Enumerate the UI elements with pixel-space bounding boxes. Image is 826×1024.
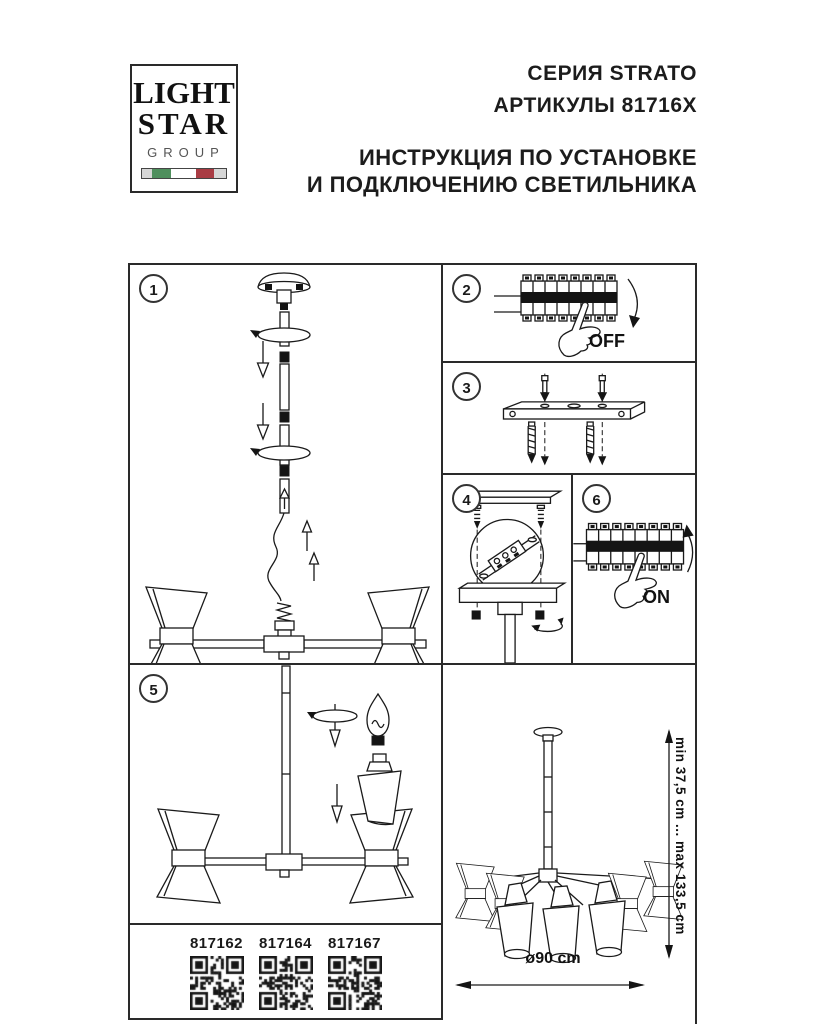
breaker-off-diagram xyxy=(443,265,695,361)
dowel-left xyxy=(541,376,549,401)
step1-number-badge: 1 xyxy=(139,274,168,303)
shade-far-left xyxy=(456,863,495,921)
instruction-line2: И ПОДКЛЮЧЕНИЮ СВЕТИЛЬНИКА xyxy=(307,171,697,198)
dowel-right xyxy=(598,376,606,401)
logo-group-text: GROUP xyxy=(132,145,236,160)
qr-item: 817162 xyxy=(189,935,245,1018)
height-dimension-arrow xyxy=(665,729,673,959)
instruction-line1: ИНСТРУКЦИЯ ПО УСТАНОВКЕ xyxy=(307,144,697,171)
italian-flag-stripe xyxy=(141,168,227,179)
panel-step4: 4 xyxy=(443,475,573,665)
screw-right xyxy=(587,422,594,462)
diameter-label: ø90 cm xyxy=(498,950,608,968)
panel-step5: 5 xyxy=(128,665,443,925)
qr-code xyxy=(190,956,244,1010)
step2-number-badge: 2 xyxy=(452,274,481,303)
panel-step6: 6 ON xyxy=(573,475,697,665)
instruction-title: ИНСТРУКЦИЯ ПО УСТАНОВКЕ И ПОДКЛЮЧЕНИЮ СВ… xyxy=(307,144,697,198)
panel-step2: 2 OFF xyxy=(443,263,697,363)
steps-grid: 1 xyxy=(128,263,697,1024)
panel-qr-codes: 817162 817164 817167 xyxy=(128,925,443,1020)
qr-item: 817164 xyxy=(258,935,314,1018)
on-label: ON xyxy=(643,587,670,608)
screw-right xyxy=(537,505,544,527)
rod-assembly-diagram xyxy=(130,265,441,663)
logo-light-text: LIGHT xyxy=(132,78,236,108)
screw-left xyxy=(528,422,535,462)
panel-step1: 1 xyxy=(128,263,443,665)
article-number: 817164 xyxy=(258,935,314,952)
lightstar-logo: LIGHT STAR GROUP xyxy=(130,64,238,193)
qr-code xyxy=(328,956,382,1010)
socket-ring xyxy=(367,754,392,771)
step4-number-badge: 4 xyxy=(452,484,481,513)
document-title: СЕРИЯ STRATO АРТИКУЛЫ 81716X xyxy=(494,58,697,122)
panel-final-dimensions: min 37,5 cm ... max 133,5 cm ø90 cm xyxy=(443,665,697,1024)
chandelier-dimensions-diagram xyxy=(443,665,695,1024)
step5-number-badge: 5 xyxy=(139,674,168,703)
article-number: 817167 xyxy=(327,935,383,952)
qr-item: 817167 xyxy=(327,935,383,1018)
off-label: OFF xyxy=(589,331,625,352)
article-number: 817162 xyxy=(189,935,245,952)
instruction-sheet: LIGHT STAR GROUP СЕРИЯ STRATO АРТИКУЛЫ 8… xyxy=(0,0,826,1024)
height-range-label: min 37,5 cm ... max 133,5 cm xyxy=(673,737,688,949)
bulb xyxy=(367,694,389,745)
mounting-bracket-diagram xyxy=(443,363,695,473)
shade-bulb-assembly-diagram xyxy=(130,665,441,923)
panel-step3: 3 xyxy=(443,363,697,475)
diameter-dimension-arrow xyxy=(455,981,645,989)
logo-star-text: STAR xyxy=(132,108,236,140)
articles-title: АРТИКУЛЫ 81716X xyxy=(494,90,697,122)
step6-number-badge: 6 xyxy=(582,484,611,513)
qr-code xyxy=(259,956,313,1010)
step3-number-badge: 3 xyxy=(452,372,481,401)
series-title: СЕРИЯ STRATO xyxy=(494,58,697,90)
